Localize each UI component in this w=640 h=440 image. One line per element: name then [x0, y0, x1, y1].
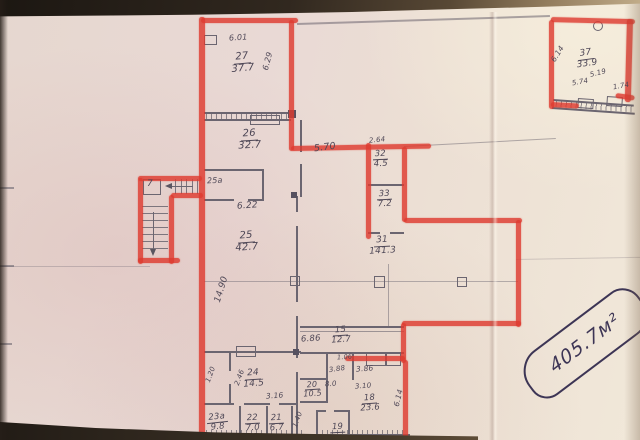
wall-segment: [300, 326, 404, 328]
room-area: 10.5: [303, 390, 322, 400]
stair-arrow-line: [153, 212, 154, 250]
room-label: 337.2: [377, 190, 393, 210]
wall-segment: [204, 281, 518, 282]
window-box: [204, 35, 217, 45]
wall-segment: [204, 403, 234, 405]
room-label: 2632.7: [237, 128, 261, 151]
room-label: 2737.7: [230, 51, 255, 75]
wall-segment: [296, 226, 298, 302]
room-label: 216.7: [269, 414, 285, 434]
red-marker-segment: [169, 195, 174, 264]
window-box: [250, 115, 280, 125]
red-marker-segment: [199, 17, 205, 438]
room-label: 227.0: [245, 414, 261, 434]
red-marker-segment: [402, 321, 521, 326]
wall-segment: [244, 403, 270, 405]
wall-segment: [390, 232, 404, 234]
red-marker-segment: [403, 360, 408, 438]
red-marker-segment: [549, 20, 554, 109]
wall-segment: [142, 234, 168, 235]
wall-segment: [142, 241, 168, 242]
wall-segment: [229, 351, 231, 371]
room-area: 23.6: [360, 403, 380, 413]
window-box: [236, 346, 256, 357]
stair-arrow-line: [171, 186, 193, 187]
room-label: 3733.9: [575, 48, 598, 71]
room-area: 14.5: [243, 379, 264, 390]
wall-segment: [368, 184, 404, 186]
room-label: 7: [147, 180, 153, 190]
wall-segment: [142, 206, 168, 207]
red-marker-segment: [345, 356, 405, 361]
photo-edge-right: [624, 0, 640, 440]
dimension-label: 6.86: [301, 334, 321, 344]
wall-segment: [300, 331, 404, 332]
room-area: 37.7: [231, 63, 255, 76]
red-marker-segment: [404, 218, 522, 223]
wall-segment: [204, 169, 264, 171]
room-label: 19: [330, 423, 346, 433]
dimension-label: 2.64: [369, 136, 386, 145]
red-marker-segment: [138, 178, 143, 264]
scanned-floor-plan-photo: 2737.72632.72542.7324.5337.231141.31512.…: [0, 0, 640, 440]
red-marker-segment: [402, 147, 407, 222]
red-marker-segment: [516, 220, 521, 327]
dimension-label: 6.01: [229, 33, 248, 43]
dimension-label: 8.0: [325, 381, 337, 389]
room-label: 31141.3: [368, 235, 396, 256]
room-number: 25а: [207, 176, 223, 186]
red-marker-segment: [366, 143, 371, 239]
room-label: 2010.5: [302, 380, 322, 399]
red-marker-segment: [171, 193, 203, 198]
dimension-label: 6.22: [237, 201, 258, 212]
paper-fold-crease: [489, 12, 498, 440]
wall-junction: [293, 349, 299, 355]
wall-segment: [388, 264, 389, 328]
wall-segment: [229, 384, 231, 405]
column-marker: [457, 277, 467, 287]
stair-arrow-head-down: [150, 249, 156, 256]
room-label: 324.5: [373, 150, 389, 170]
wall-segment: [142, 220, 168, 221]
room-area: 4.5: [374, 160, 389, 170]
wall-segment: [296, 196, 298, 212]
wall-segment: [316, 410, 318, 438]
window-box: [577, 98, 594, 109]
room-label: 23а9.8: [206, 412, 228, 433]
room-label: 25а: [207, 177, 223, 186]
stair-arrow-head-left: [165, 183, 172, 189]
dimension-label: 1.06: [337, 353, 353, 361]
room-area: 6.7: [270, 424, 285, 434]
room-label: 1512.7: [330, 325, 351, 345]
column-marker: [290, 276, 300, 286]
wall-segment: [142, 227, 168, 228]
wall-segment: [204, 199, 234, 201]
photo-edge-left: [0, 0, 8, 440]
red-marker-segment: [201, 18, 298, 23]
room-area: 7.0: [246, 424, 261, 434]
room-number: 7: [147, 179, 153, 189]
dimension-label: 3.10: [355, 382, 372, 391]
wall-segment: [300, 401, 328, 403]
room-area: 7.2: [378, 200, 393, 210]
room-area: 42.7: [235, 242, 259, 254]
room-area: 32.7: [238, 140, 262, 152]
wall-segment: [262, 169, 264, 201]
wall-segment: [142, 213, 168, 214]
room-label: 2542.7: [234, 230, 259, 254]
dimension-label: 3.16: [266, 391, 284, 400]
wall-segment: [0, 266, 150, 267]
column-marker: [374, 276, 385, 288]
dimension-label: 3.86: [356, 364, 374, 373]
room-label: 1823.6: [359, 393, 380, 413]
room-area: 9.8: [210, 422, 225, 432]
room-number: 19: [330, 422, 346, 434]
room-area: 141.3: [369, 246, 396, 257]
wall-junction: [291, 192, 297, 198]
wall-segment: [197, 179, 198, 194]
room-area: 12.7: [331, 335, 351, 345]
wall-segment: [279, 403, 298, 405]
red-marker-segment: [289, 20, 294, 151]
wall-segment: [300, 164, 302, 197]
